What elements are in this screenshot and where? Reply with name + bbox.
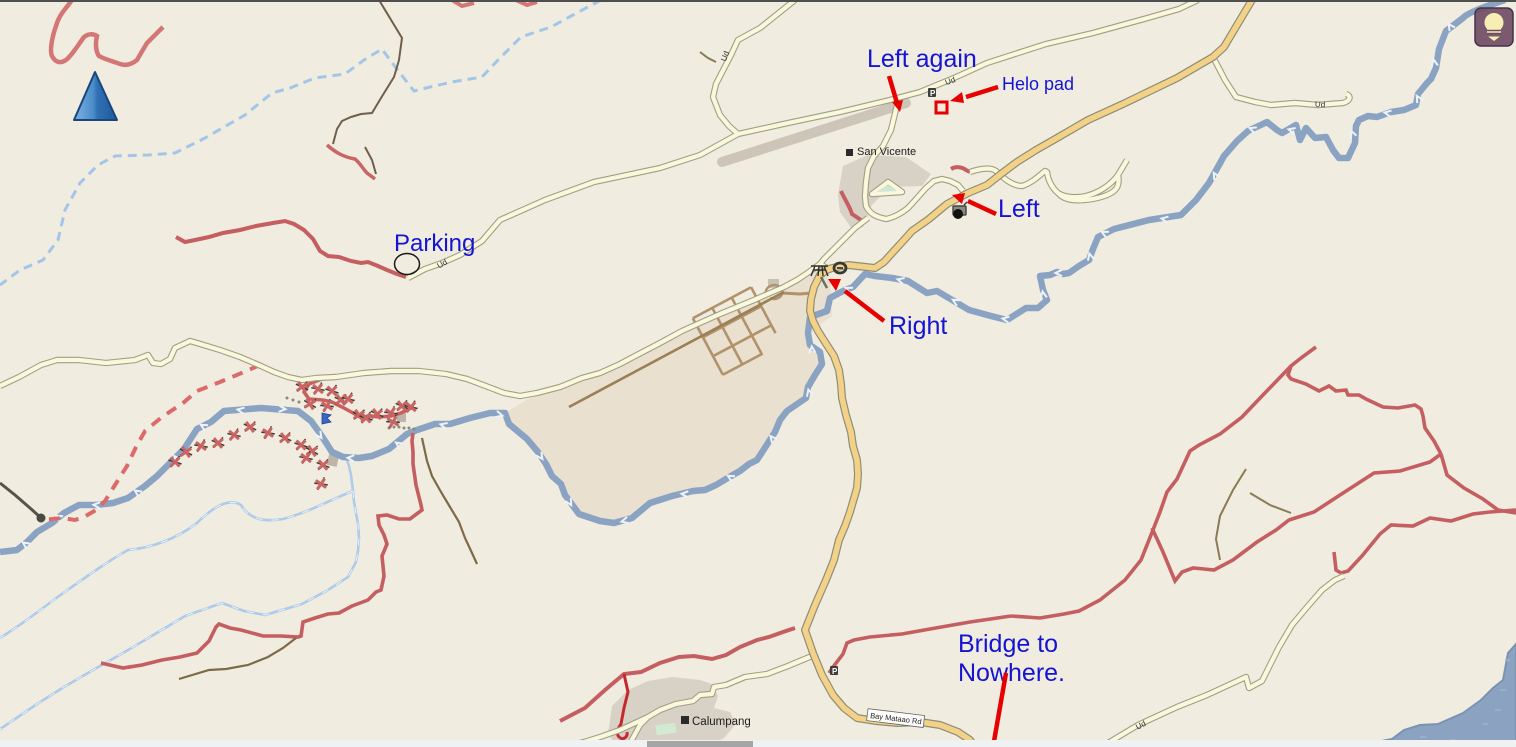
svg-text:Left: Left (998, 195, 1040, 223)
svg-text:Right: Right (889, 312, 947, 340)
svg-text:P: P (832, 667, 838, 676)
svg-text:Ud: Ud (1315, 100, 1326, 110)
svg-text:Calumpang: Calumpang (692, 716, 751, 728)
svg-text:Bridge to: Bridge to (958, 630, 1058, 658)
svg-text:San Vicente: San Vicente (857, 146, 916, 158)
svg-text:Helo pad: Helo pad (1002, 74, 1074, 94)
svg-text:P: P (930, 89, 936, 98)
svg-text:Nowhere.: Nowhere. (958, 659, 1065, 687)
svg-text:Left again: Left again (867, 45, 977, 73)
